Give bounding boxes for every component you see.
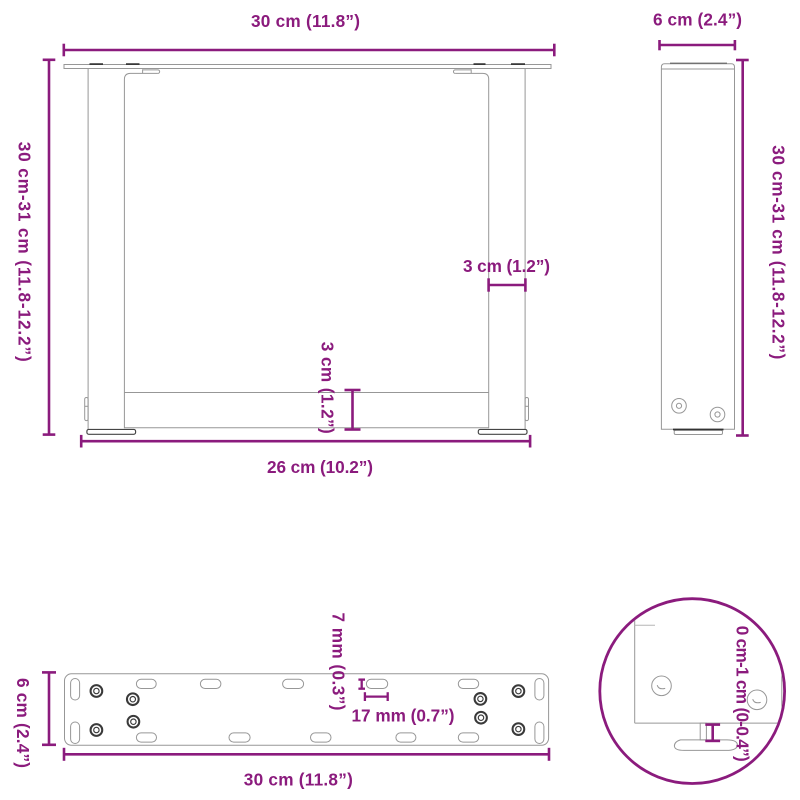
svg-text:3 cm (1.2”): 3 cm (1.2”) — [463, 256, 550, 276]
svg-text:26 cm (10.2”): 26 cm (10.2”) — [267, 457, 373, 477]
svg-text:30 cm (11.8”): 30 cm (11.8”) — [244, 770, 353, 790]
svg-text:0 cm-1 cm (0-0.4”): 0 cm-1 cm (0-0.4”) — [733, 626, 753, 762]
svg-text:30 cm-31 cm (11.8-12.2”): 30 cm-31 cm (11.8-12.2”) — [769, 145, 789, 359]
svg-text:7 mm (0.3”): 7 mm (0.3”) — [328, 613, 348, 711]
svg-text:30 cm (11.8”): 30 cm (11.8”) — [251, 11, 360, 31]
svg-text:6 cm (2.4”): 6 cm (2.4”) — [653, 10, 742, 30]
svg-text:6 cm (2.4”): 6 cm (2.4”) — [13, 678, 33, 768]
svg-text:3 cm (1.2”): 3 cm (1.2”) — [318, 342, 338, 434]
svg-text:17 mm (0.7”): 17 mm (0.7”) — [352, 705, 455, 725]
svg-text:30 cm-31 cm (11.8-12.2”): 30 cm-31 cm (11.8-12.2”) — [15, 142, 35, 362]
